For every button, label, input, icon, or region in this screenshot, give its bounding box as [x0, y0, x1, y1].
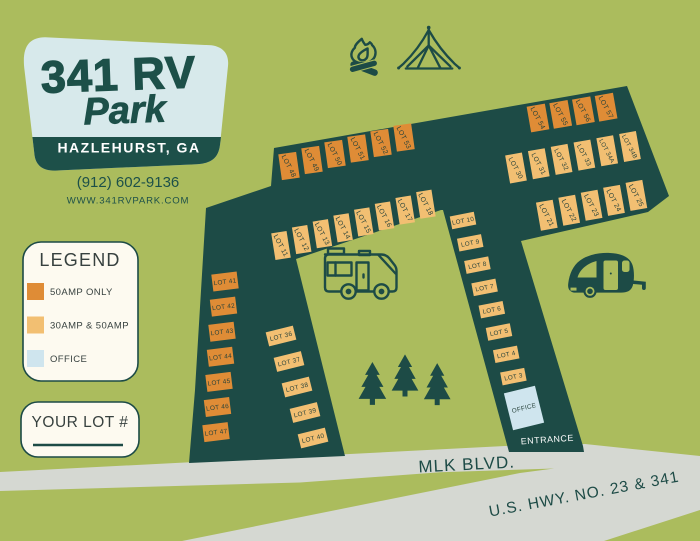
svg-text:WWW.341RVPARK.COM: WWW.341RVPARK.COM: [67, 196, 190, 207]
svg-text:50AMP ONLY: 50AMP ONLY: [50, 287, 113, 298]
svg-text:(912) 602-9136: (912) 602-9136: [77, 174, 180, 191]
svg-text:Park: Park: [83, 89, 169, 134]
svg-text:YOUR LOT #: YOUR LOT #: [32, 414, 129, 431]
svg-text:OFFICE: OFFICE: [50, 354, 87, 365]
svg-text:LEGEND: LEGEND: [39, 250, 120, 270]
svg-text:HAZLEHURST, GA: HAZLEHURST, GA: [57, 140, 200, 156]
svg-text:30AMP & 50AMP: 30AMP & 50AMP: [50, 321, 129, 332]
